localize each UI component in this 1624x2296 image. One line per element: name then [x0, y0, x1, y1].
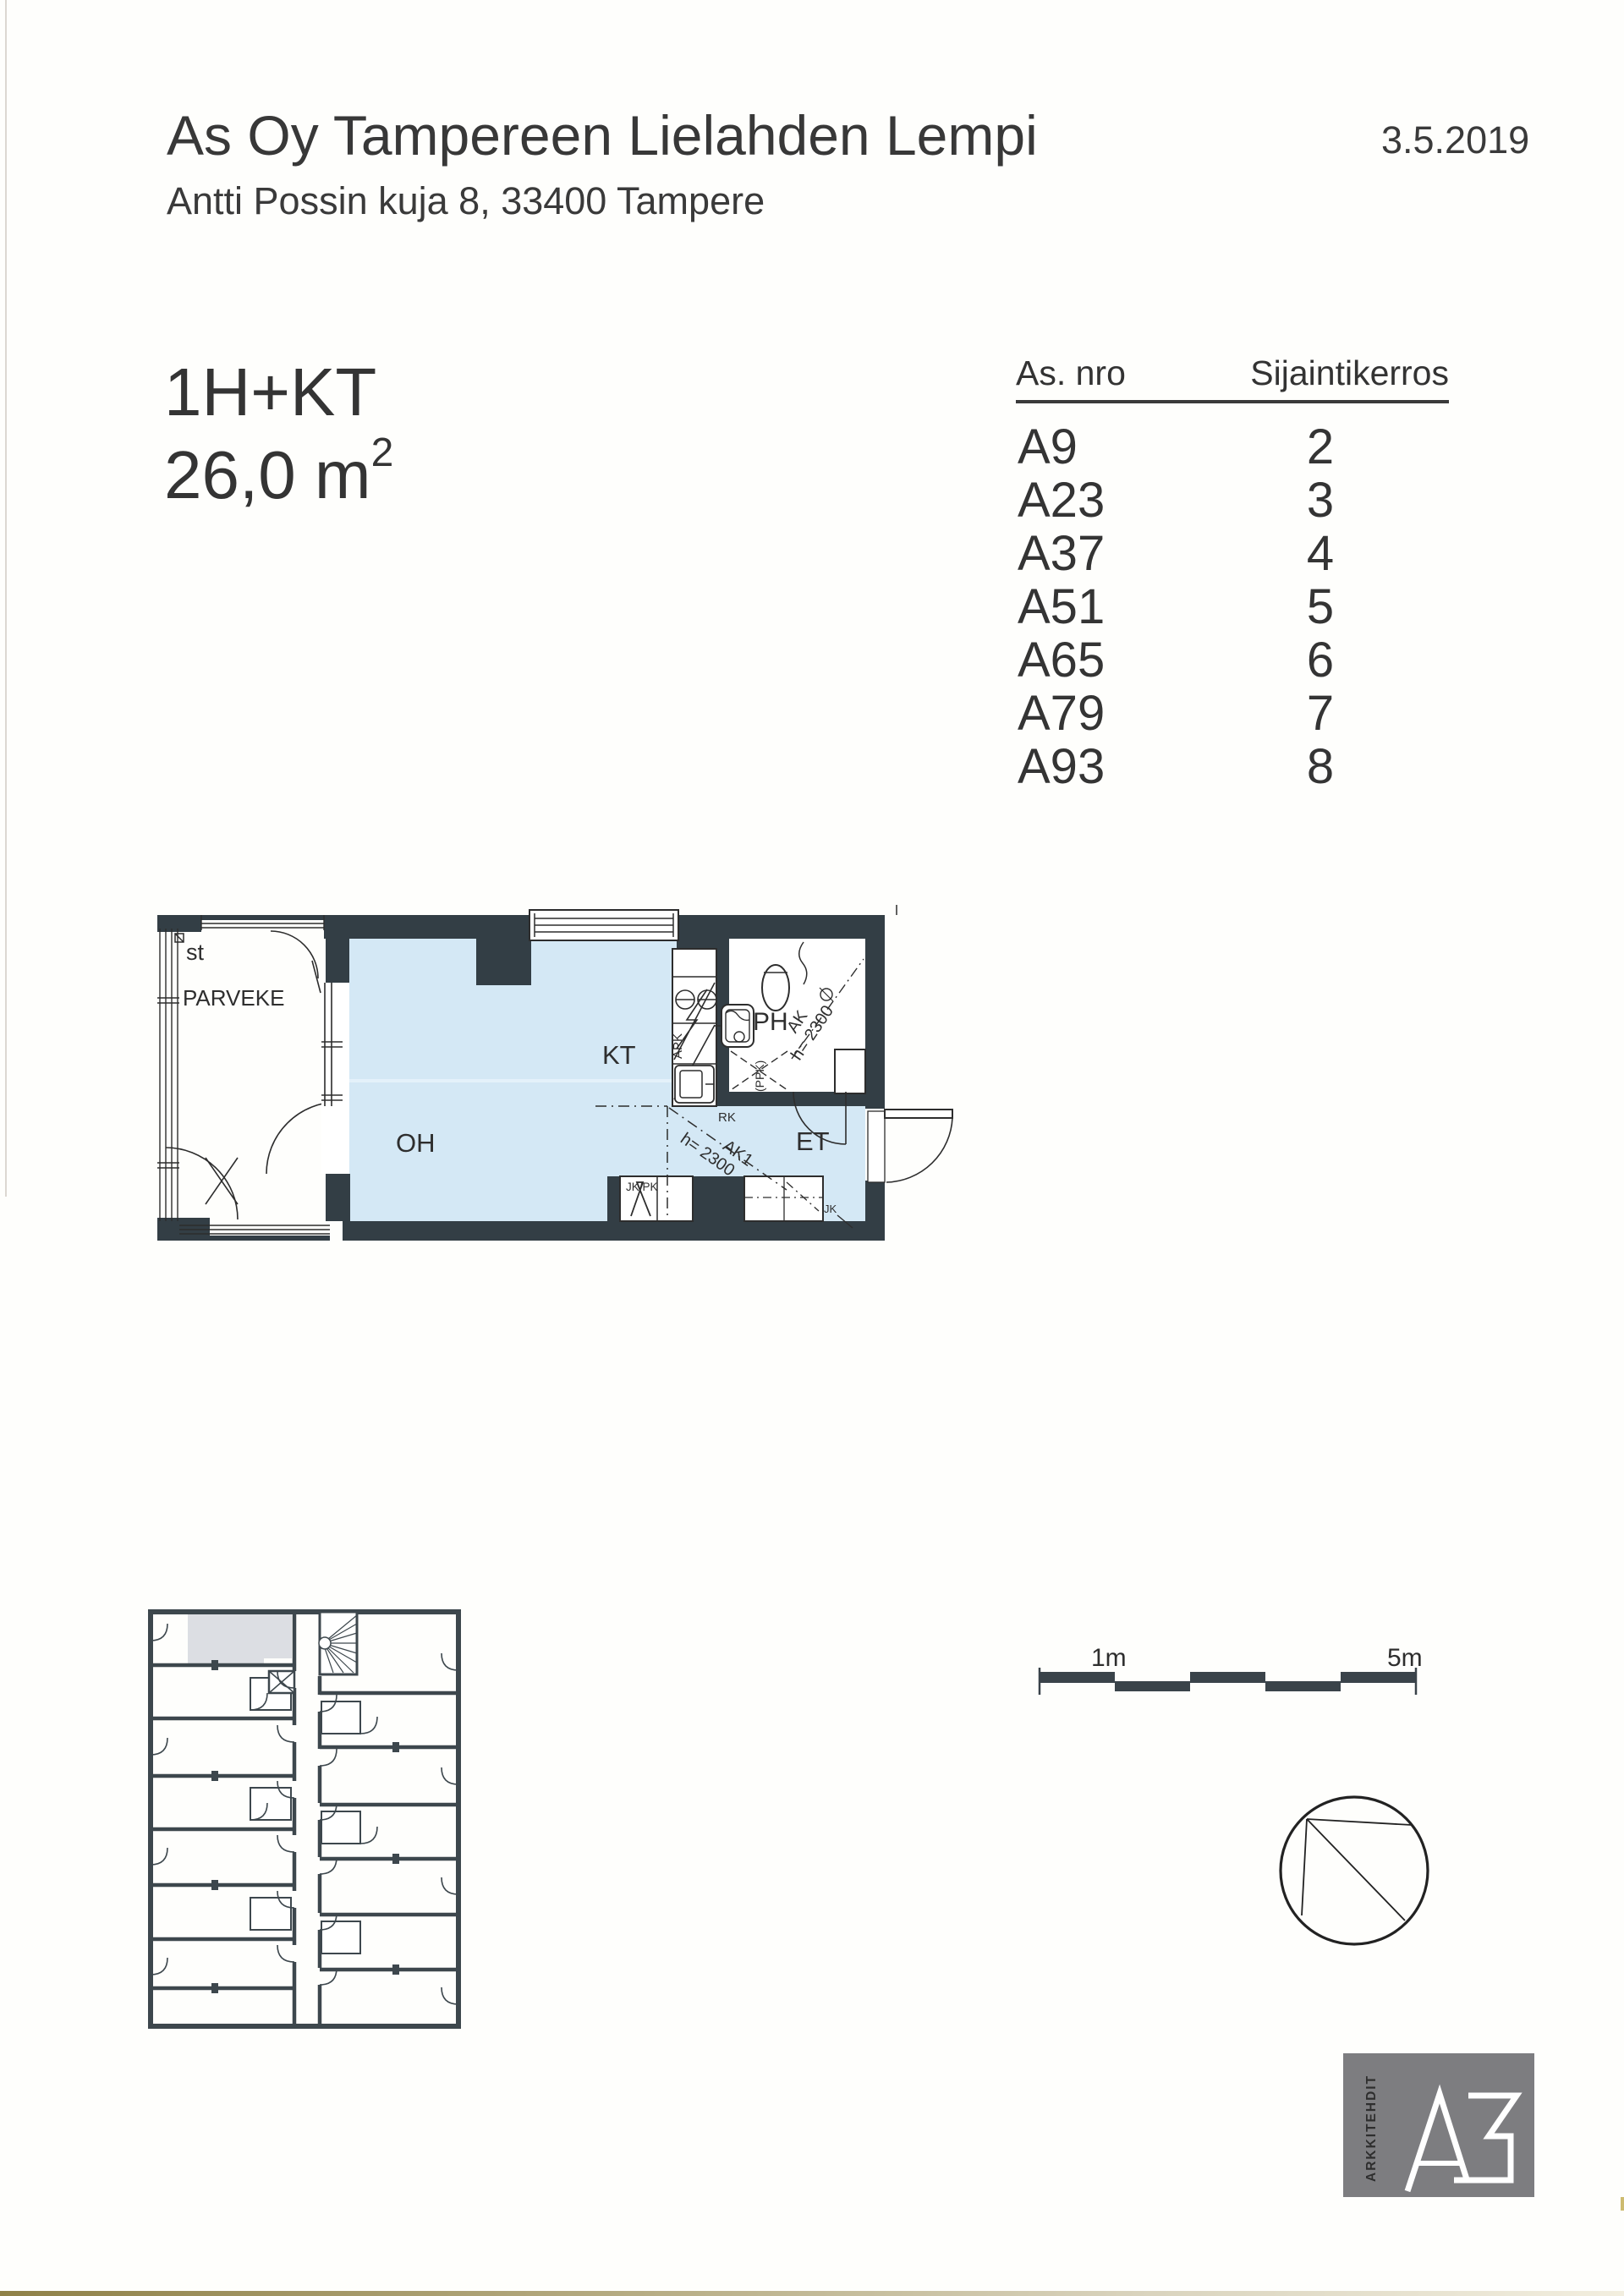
apartment-floor-plan: APK: [152, 901, 977, 1250]
highlighted-apartment: [188, 1614, 292, 1665]
scan-edge-line: [5, 0, 7, 1197]
logo-graphic: ARKKITEHDIT: [1343, 2053, 1534, 2197]
corridor-walls: [294, 1612, 320, 2026]
building-outline: [151, 1612, 458, 2026]
table-row: A374: [1016, 525, 1449, 578]
kitchen-label: KT: [602, 1040, 636, 1070]
dishwasher-label: APK: [671, 1033, 685, 1059]
rk-label: RK: [718, 1110, 736, 1125]
scale-end-label: 5m: [1387, 1644, 1423, 1672]
scale-bar: 1m 5m: [1028, 1632, 1434, 1704]
location-table-header: As. nro Sijaintikerros: [1016, 353, 1449, 393]
apartment-number: A23: [1018, 472, 1105, 529]
door-arcs: [151, 1624, 458, 2004]
svg-text:(PPK): (PPK): [753, 1060, 766, 1092]
bathroom-niche: [835, 1049, 865, 1093]
apartment-number: A9: [1018, 419, 1078, 475]
door-cross-mark: [206, 1158, 238, 1204]
table-row: A515: [1016, 578, 1449, 632]
table-row: A797: [1016, 685, 1449, 738]
floor-number: 3: [1291, 472, 1350, 529]
bathroom-label: PH: [753, 1008, 788, 1036]
location-table-rows: A92 A233 A374 A515 A656 A797 A938: [1016, 419, 1449, 792]
page-title: As Oy Tampereen Lielahden Lempi: [167, 103, 1038, 167]
property-address: Antti Possin kuja 8, 33400 Tampere: [167, 179, 765, 223]
balcony-door-arc-top: [271, 931, 318, 978]
toilet: [762, 965, 789, 1011]
apartment-number: A79: [1018, 685, 1105, 742]
table-row: A92: [1016, 419, 1449, 472]
apartment-area-value: 26,0 m: [164, 437, 371, 512]
entry-door: [868, 1110, 952, 1182]
floor-number: 7: [1291, 685, 1350, 742]
apartment-number: A37: [1018, 525, 1105, 582]
balcony-structure: [157, 915, 338, 1234]
apartment-area-superscript: 2: [371, 430, 394, 475]
scale-start-label: 1m: [1091, 1644, 1127, 1672]
apartment-number: A93: [1018, 738, 1105, 795]
location-table: As. nro Sijaintikerros A92 A233 A374 A51…: [1016, 353, 1449, 792]
balcony-top-edge: [201, 915, 324, 920]
table-row: A233: [1016, 472, 1449, 525]
header-underline: [1016, 400, 1449, 403]
balcony-glazing: [157, 929, 179, 1221]
architect-logo: ARKKITEHDIT: [1343, 2053, 1534, 2197]
jk-label: JK: [824, 1203, 837, 1215]
fridge-label: JK/PK: [626, 1181, 658, 1193]
shaft-box: [269, 1671, 294, 1693]
scan-right-tick: [1621, 2197, 1624, 2211]
entry-label: ET: [796, 1126, 830, 1156]
ppk-annotation: (PPK): [753, 1060, 766, 1092]
scan-bottom-band: [0, 2291, 1624, 2296]
balcony-label: PARVEKE: [183, 985, 284, 1011]
floor-number: 6: [1291, 632, 1350, 688]
logo-mark: [1407, 2094, 1517, 2191]
scale-segments: [1040, 1672, 1416, 1691]
door-leaf: [885, 1110, 952, 1118]
apartment-area: 26,0 m2: [164, 430, 393, 514]
living-room-label: OH: [396, 1128, 436, 1158]
floor-number: 8: [1291, 738, 1350, 795]
balcony-structure-label: st: [186, 940, 205, 965]
orientation-circle: [1281, 1797, 1428, 1944]
wall-jambs: [211, 1660, 399, 1993]
apartment-type: 1H+KT: [164, 353, 376, 431]
orientation-chords: [1302, 1819, 1412, 1921]
door-swing-arc: [886, 1118, 952, 1182]
stairwell: [319, 1612, 357, 1674]
column-apartment-number: As. nro: [1016, 353, 1126, 393]
logo-vertical-text: ARKKITEHDIT: [1364, 2074, 1379, 2182]
kitchen-counter: APK: [671, 949, 716, 1106]
floor-number: 4: [1291, 525, 1350, 582]
living-room-window: [529, 910, 678, 940]
building-overview-plan: [142, 1603, 470, 2036]
table-row: A938: [1016, 738, 1449, 792]
left-apartment-dividers: [151, 1665, 294, 1988]
column-floor: Sijaintikerros: [1250, 353, 1449, 393]
balcony-wall-window: [321, 983, 349, 1174]
orientation-symbol: [1269, 1784, 1438, 1958]
service-door-arc: [166, 1148, 238, 1219]
drawing-sheet: As Oy Tampereen Lielahden Lempi 3.5.2019…: [0, 0, 1624, 2296]
floor-number: 2: [1291, 419, 1350, 475]
table-row: A656: [1016, 632, 1449, 685]
floor-number: 5: [1291, 578, 1350, 635]
apartment-number: A65: [1018, 632, 1105, 688]
apartment-number: A51: [1018, 578, 1105, 635]
drawing-date: 3.5.2019: [1381, 118, 1529, 162]
